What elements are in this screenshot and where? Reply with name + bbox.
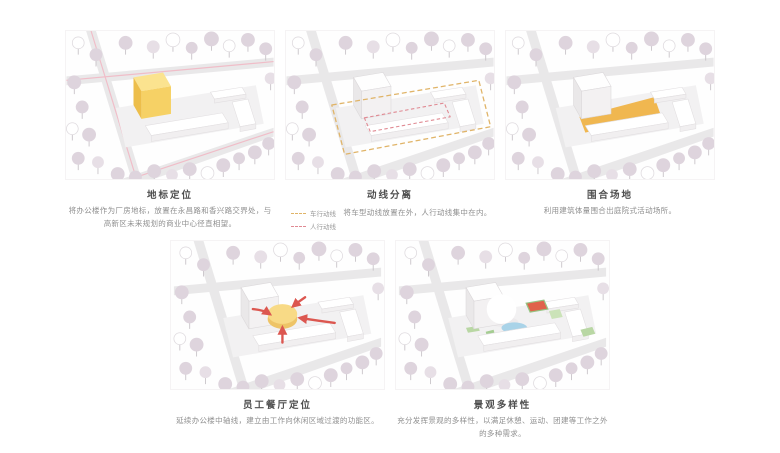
legend-label: 人行动线 (310, 221, 336, 231)
office-landmark-cube (133, 72, 170, 118)
panel-description: 将车型动线放置在外，人行动线集中在内。 (340, 206, 495, 219)
legend-row-pedestrian: 人行动线 (291, 221, 336, 231)
enclosure-site-diagram (505, 30, 715, 180)
panel-description: 充分发挥景观的多样性，以满足休憩、运动、团建等工作之外的多种需求。 (395, 414, 610, 440)
panel-title: 围合场地 (505, 187, 715, 201)
panel-description: 将办公楼作为厂房地标，放置在永昌路和香兴路交界处，与高新区未来规划的商业中心径直… (65, 204, 275, 230)
panel-title: 动线分离 (285, 187, 495, 201)
canteen-site-diagram (170, 240, 385, 390)
caption: 围合场地 利用建筑体量围合出庭院式活动场所。 (505, 187, 715, 217)
panel-title: 员工餐厅定位 (170, 397, 385, 411)
office-cube (573, 72, 610, 118)
caption: 地标定位 将办公楼作为厂房地标，放置在永昌路和香兴路交界处，与高新区未来规划的商… (65, 187, 275, 230)
panel-description: 延续办公楼中轴线，建立由工作向休闲区域过渡的功能区。 (170, 414, 385, 427)
pedestrian-route-line-icon (291, 226, 306, 227)
panel-title: 地标定位 (65, 187, 275, 201)
legend-label: 车行动线 (310, 208, 336, 218)
vehicle-route-line-icon (291, 213, 306, 214)
caption: 动线分离 车行动线 人行动线 将车型动线放置在外，人行动线集中在内。 (285, 187, 495, 231)
caption: 景观多样性 充分发挥景观的多样性，以满足休憩、运动、团建等工作之外的多种需求。 (395, 397, 610, 440)
landscape-site-diagram (395, 240, 610, 390)
panel-landmark: 地标定位 将办公楼作为厂房地标，放置在永昌路和香兴路交界处，与高新区未来规划的商… (65, 30, 275, 230)
canteen-dome (487, 294, 517, 324)
legend-row-vehicle: 车行动线 (291, 208, 336, 218)
circulation-site-diagram (285, 30, 495, 180)
canteen-volume (268, 304, 298, 329)
panel-title: 景观多样性 (395, 397, 610, 411)
panel-landscape: 景观多样性 充分发挥景观的多样性，以满足休憩、运动、团建等工作之外的多种需求。 (395, 240, 610, 440)
page: 地标定位 将办公楼作为厂房地标，放置在永昌路和香兴路交界处，与高新区未来规划的商… (0, 0, 780, 453)
landmark-site-diagram (65, 30, 275, 180)
panel-canteen: 员工餐厅定位 延续办公楼中轴线，建立由工作向休闲区域过渡的功能区。 (170, 240, 385, 427)
panel-circulation: 动线分离 车行动线 人行动线 将车型动线放置在外，人行动线集中在内。 (285, 30, 495, 231)
panel-enclosure: 围合场地 利用建筑体量围合出庭院式活动场所。 (505, 30, 715, 217)
panel-description: 利用建筑体量围合出庭院式活动场所。 (505, 204, 715, 217)
caption: 员工餐厅定位 延续办公楼中轴线，建立由工作向休闲区域过渡的功能区。 (170, 397, 385, 427)
office-cube (353, 72, 390, 118)
circulation-legend: 车行动线 人行动线 (285, 205, 340, 231)
